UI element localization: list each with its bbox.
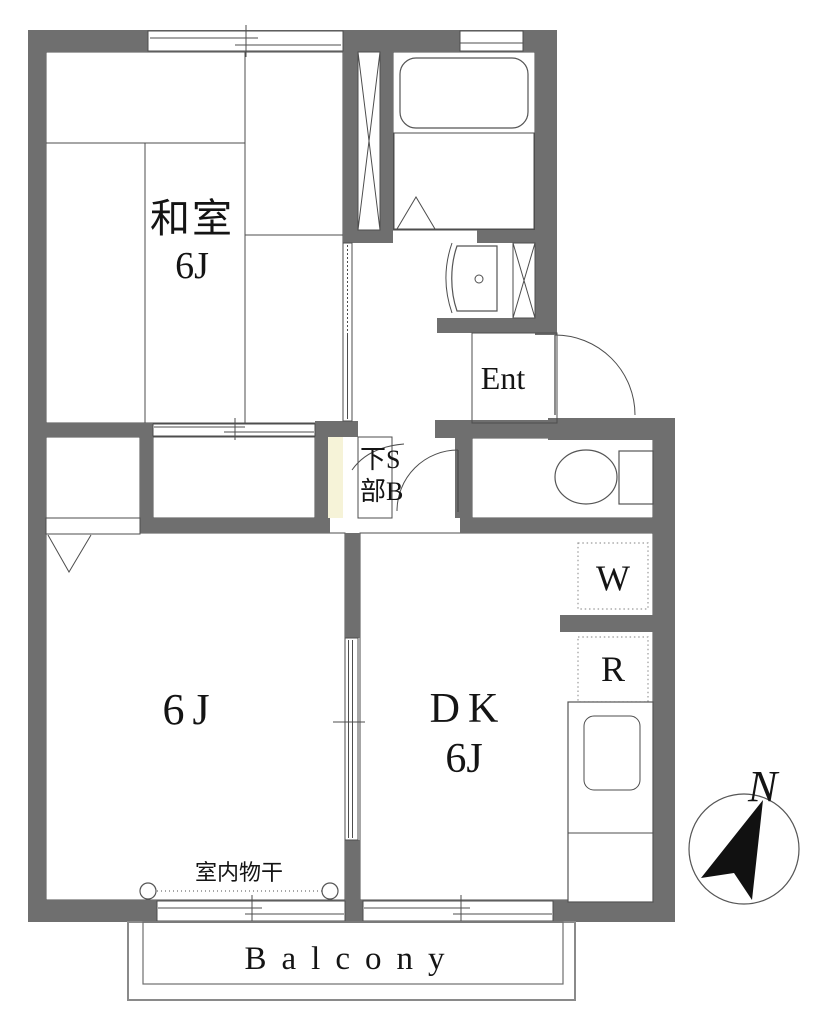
wall-segment <box>343 230 393 243</box>
north-label: N <box>747 762 780 811</box>
closet-opening <box>46 518 140 534</box>
refrigerator-label: R <box>601 649 625 689</box>
living-size-label: 6J <box>162 685 217 734</box>
wall-segment <box>328 421 358 437</box>
balcony-label: Balcony <box>245 941 460 977</box>
dk-size-label: 6J <box>445 736 482 782</box>
under-storage-label-line2: 部B <box>360 477 403 506</box>
wall-segment <box>653 418 675 922</box>
bathroom-wet-floor <box>394 133 534 229</box>
wall-segment <box>140 437 153 518</box>
bath-door-marker <box>397 197 435 229</box>
compass: N <box>689 762 799 904</box>
closet-strip <box>328 437 343 518</box>
wall-segment <box>380 52 393 230</box>
under-storage-label-line1: 下S <box>360 445 400 474</box>
labels: 和室 6J 6J DK 6J Ent 下S 部B W R 室内物干 Balcon… <box>150 196 630 977</box>
wall-segment <box>28 900 675 922</box>
wall-segment <box>345 533 360 638</box>
window-bathroom <box>460 31 523 51</box>
washbasin <box>452 246 497 311</box>
sliding-door-living-dk <box>345 638 358 840</box>
wall-segment <box>343 30 358 243</box>
floor-plan: N 和室 6J 6J DK 6J Ent 下S 部B W R 室内物干 Balc… <box>0 0 835 1024</box>
wall-segment <box>460 518 675 533</box>
toilet-tank <box>619 451 653 504</box>
wall-segment <box>28 30 46 922</box>
wall-segment <box>535 30 557 335</box>
wall-segment <box>437 318 535 333</box>
toilet-door-arc <box>397 450 458 511</box>
washitsu-size-label: 6J <box>175 245 209 287</box>
entrance-door-arc <box>555 335 635 415</box>
entrance-label: Ent <box>481 360 526 396</box>
floor-plan-canvas: N 和室 6J 6J DK 6J Ent 下S 部B W R 室内物干 Balc… <box>0 0 835 1024</box>
dk-name-label: DK <box>430 686 507 732</box>
window-dk-balcony <box>363 901 553 921</box>
washer-label: W <box>596 558 630 598</box>
toilet-bowl <box>555 450 617 504</box>
wall-segment <box>140 518 330 533</box>
closet-left <box>46 437 140 518</box>
wall-segment <box>315 421 328 533</box>
closet-sliding-door <box>153 424 315 436</box>
wall-segment <box>46 423 153 437</box>
wall-segment <box>560 615 653 632</box>
washbasin-front-arc <box>446 243 452 313</box>
wall-segment <box>345 840 360 902</box>
window-living-balcony <box>157 901 345 921</box>
closet-middle <box>153 437 315 518</box>
bathtub <box>400 58 528 128</box>
wall-segment <box>477 230 535 243</box>
drying-hook <box>140 883 156 899</box>
indoor-drying-label: 室内物干 <box>195 860 283 885</box>
washitsu-name-label: 和室 <box>150 196 234 241</box>
drying-hook <box>322 883 338 899</box>
closet-door-marker <box>48 535 91 572</box>
